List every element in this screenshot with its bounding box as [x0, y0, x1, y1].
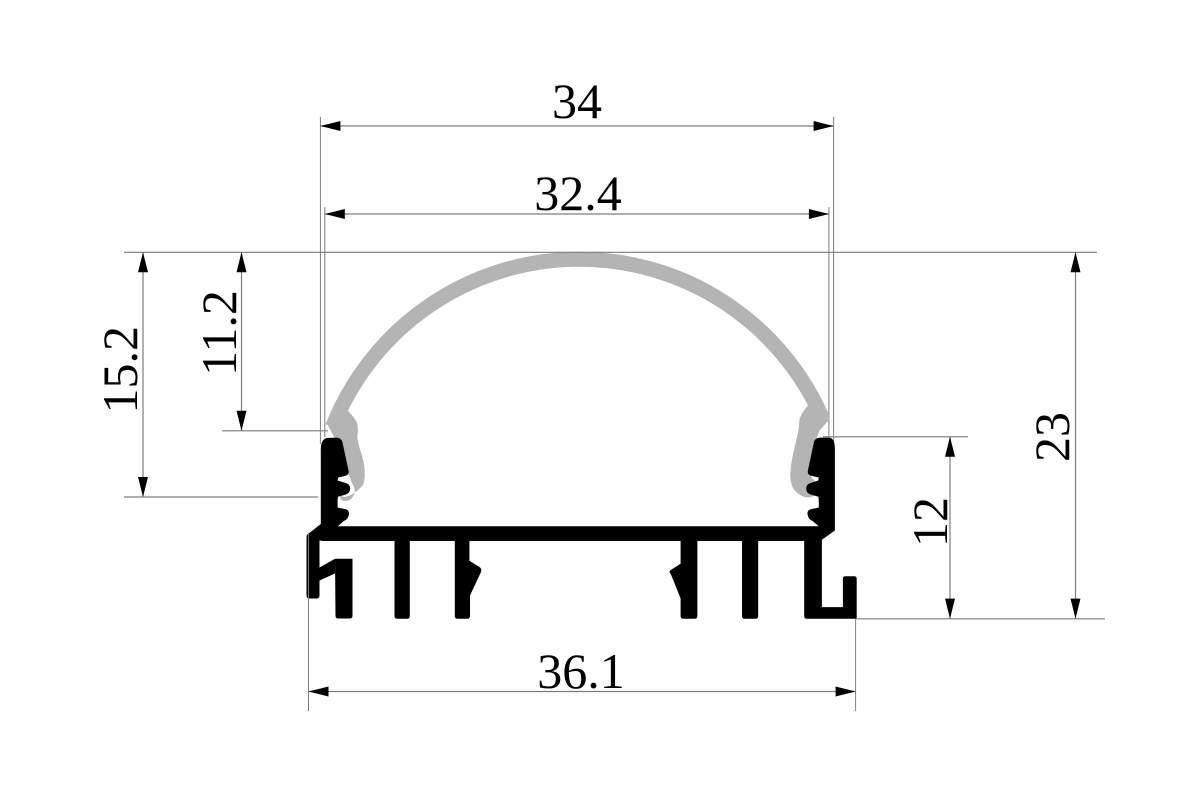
svg-text:11.2: 11.2: [191, 290, 247, 376]
svg-text:32.4: 32.4: [534, 165, 622, 221]
svg-text:23: 23: [1024, 412, 1080, 462]
svg-text:34: 34: [552, 73, 602, 129]
svg-text:36.1: 36.1: [537, 643, 625, 699]
svg-text:12: 12: [902, 497, 958, 547]
svg-text:15.2: 15.2: [92, 326, 148, 414]
